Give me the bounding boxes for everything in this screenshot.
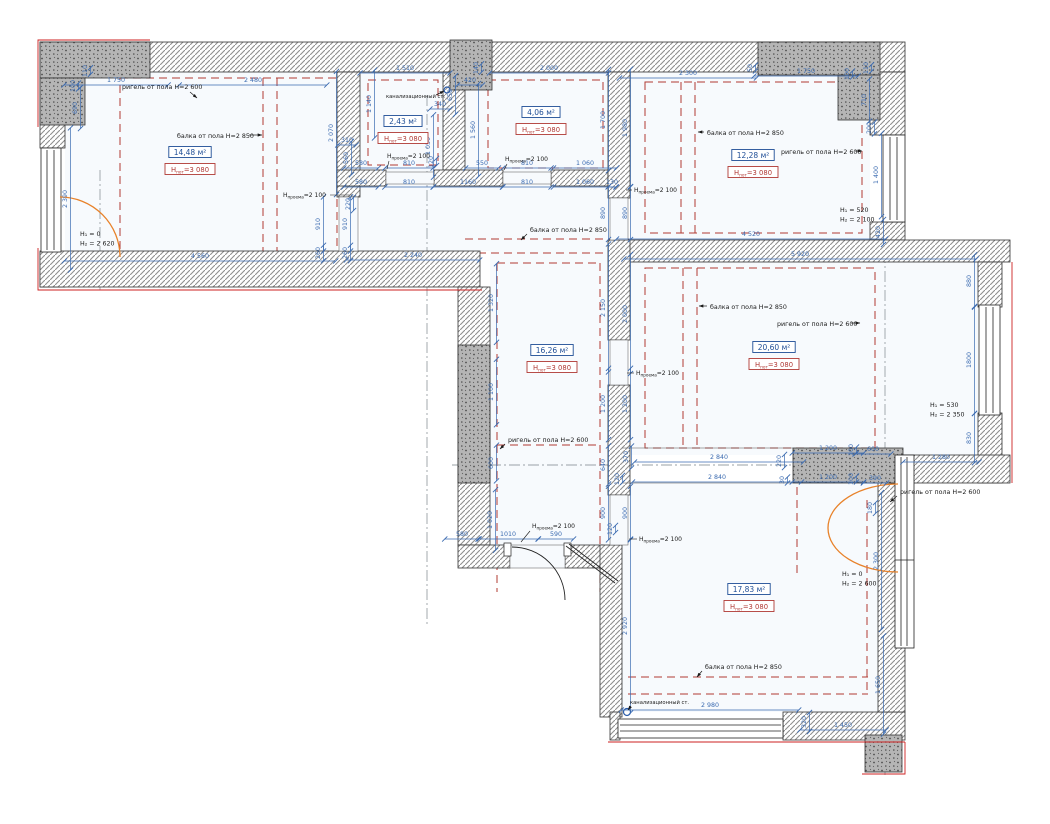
dimension-label: 130 [606, 179, 618, 186]
annotation-label: канализационный ст. [630, 699, 689, 706]
dimension-label: 2 390 [62, 190, 69, 208]
dimension-label: 4 520 [742, 231, 760, 238]
dimension-label: 1 200 [819, 474, 837, 481]
dimension-label: 2 240 [404, 252, 422, 259]
annotation-label: ригель от пола Н=2 600 [508, 437, 588, 444]
dimension-label: 340 [434, 101, 446, 108]
room-area-label: 17,83 м² [733, 585, 766, 594]
sill-height-line1: Н₁ = 0 [842, 571, 863, 578]
dimension-label: 1 200 [819, 445, 837, 452]
sill-height-line1: Н₁ = 520 [840, 207, 869, 214]
sill-height-line2: Н₂ = 2 600 [842, 581, 877, 588]
dimension-label: 50 [747, 64, 754, 72]
dimension-label: 600 [488, 457, 495, 469]
dimension-label: 220 [776, 455, 783, 467]
dimension-label: 390 [869, 475, 881, 482]
window [618, 719, 783, 738]
dimension-label: 420 [464, 77, 476, 84]
dimension-label: 1 200 [600, 395, 607, 413]
dimension-label: 1 750 [107, 77, 125, 84]
dimension-label: 890 [600, 207, 607, 219]
dimension-label: 810 [403, 179, 415, 186]
annotation: балка от пола Н=2 850 [177, 132, 262, 140]
annotation: балка от пола Н=2 850 [698, 129, 784, 137]
dimension-label: 1 060 [576, 160, 594, 167]
dimension-label: 1160 [460, 179, 476, 186]
dimension-label: 580 [355, 179, 367, 186]
annotation-label: балка от пола Н=2 850 [705, 663, 782, 671]
dimension-label: 1 280 [932, 454, 950, 461]
dimension-label: 910 [342, 218, 349, 230]
dimension-label: 910 [315, 218, 322, 230]
room-area-label: 20,60 м² [758, 343, 791, 352]
dimension-label: 1 060 [576, 179, 594, 186]
dimension-label: 590 [550, 531, 562, 538]
dimension-label: 120 [614, 473, 621, 485]
dimension-label: 1 510 [396, 65, 414, 72]
annotation-label: балка от пола Н=2 850 [707, 129, 784, 137]
dimension-label: 220 [345, 198, 352, 210]
dimension-label: 260 [315, 247, 322, 259]
dimension-label: 2 000 [622, 305, 629, 323]
annotation: балка от пола Н=2 850 [699, 303, 787, 311]
dimension-label: 100 [844, 68, 851, 80]
dimension-label: 1 650 [875, 676, 882, 694]
dimension-label: 110 [82, 65, 89, 77]
sill-height-line2: Н₂ = 2 100 [840, 217, 875, 224]
window [41, 148, 61, 252]
dimension-label: 5 920 [791, 251, 809, 258]
dimension-label: 1010 [500, 531, 516, 538]
annotation-label: ригель от пола Н=2 600 [122, 84, 202, 91]
dimension-label: 710 [861, 94, 868, 106]
sill-height-line2: Н₂ = 2 350 [930, 412, 965, 419]
dimension-label: 110 [863, 62, 870, 74]
dimension-label: 1 750 [797, 68, 815, 75]
annotation-label: балка от пола Н=2 850 [177, 132, 254, 140]
dimension-label: 1 020 [487, 511, 494, 529]
sill-height-line1: Н₁ = 530 [930, 402, 959, 409]
room-area-label: 14,48 м² [174, 148, 207, 157]
sill-height-line1: Н₁ = 0 [80, 231, 101, 238]
annotation-label: ригель от пола Н=2 600 [781, 149, 861, 156]
dimension-label: 100 [848, 473, 855, 485]
dimension-label: 900 [622, 507, 629, 519]
annotation: ригель от пола Н=2 600 [781, 149, 862, 156]
annotation-label: балка от пола Н=2 850 [530, 226, 607, 234]
dimension-label: 180 [867, 502, 874, 514]
window [979, 305, 1000, 415]
dimension-label: 830 [966, 432, 973, 444]
dimension-label: 2 300 [873, 552, 880, 570]
annotation-label: ригель от пола Н=2 600 [777, 321, 857, 328]
dimension-label: 810 [403, 160, 415, 167]
dimension-label: 370 [623, 451, 630, 463]
dimension-label: 580 [355, 160, 367, 167]
room-area-label: 16,26 м² [536, 346, 569, 355]
dimension-label: 2 480 [244, 77, 262, 84]
dimension-label: 600 [867, 446, 879, 453]
room-area-label: 2,43 м² [389, 117, 417, 126]
dimension-label: 1 400 [873, 166, 880, 184]
sill-height-line2: Н₂ = 2 620 [80, 241, 115, 248]
dimension-label: 2 000 [540, 65, 558, 72]
dimension-label: 1 560 [470, 121, 477, 139]
dimension-label: 640 [600, 459, 607, 471]
dimension-label: 120 [607, 523, 614, 535]
window [883, 135, 905, 222]
dimension-label: 2 840 [708, 474, 726, 481]
dimension-label: 2 840 [710, 454, 728, 461]
dimension-label: 890 [622, 207, 629, 219]
dimension-label: 1 700 [600, 111, 607, 129]
dimension-label: 1 320 [488, 294, 495, 312]
dimension-label: 880 [966, 275, 973, 287]
dimension-label: 1 200 [622, 395, 629, 413]
dimension-label: 580 [456, 531, 468, 538]
annotation: ригель от пола Н=2 600 [777, 321, 860, 328]
room-area-label: 12,28 м² [737, 151, 770, 160]
annotation-label: балка от пола Н=2 850 [710, 303, 787, 311]
dimension-label: 1 450 [834, 722, 852, 729]
dimension: 1 400 [873, 131, 884, 220]
floor-plan-canvas: 1 7502 4801 5101404206503402 0002 300501… [0, 0, 1050, 824]
dimension-label: 200 [866, 122, 873, 134]
dimension-label: 100 [70, 80, 77, 92]
dimension-label: 2 070 [328, 124, 335, 142]
dimension-label: 140 [473, 62, 480, 74]
dimension-label: 1800 [966, 352, 973, 368]
dimension-label: 1 980 [622, 119, 629, 137]
dimension-label: 320 [801, 716, 808, 728]
dimension-label: 100 [848, 444, 855, 456]
dimension-label: 2 300 [679, 70, 697, 77]
dimension-label: 650 [447, 89, 454, 101]
dimension-label: 2 920 [622, 617, 629, 635]
dimension-label: 2 150 [600, 299, 607, 317]
dimension-label: 4 560 [191, 253, 209, 260]
annotation-label: канализационный ст. [386, 93, 445, 100]
dimension-label: 420 [875, 226, 882, 238]
dimension-label: 2 980 [701, 702, 719, 709]
dimension-label: 1 100 [488, 383, 495, 401]
dimension-label: 260 [342, 247, 349, 259]
dimension-label: 1 140 [366, 95, 373, 113]
dimension-label: 550 [476, 160, 488, 167]
dimension-label: 810 [521, 179, 533, 186]
dimension-label: 900 [600, 507, 607, 519]
dimension-label: 560 [343, 152, 350, 164]
dimension-label: 30 [779, 476, 786, 484]
dimension-label: 690 [72, 102, 79, 114]
annotation-label: ригель от пола Н=2 600 [900, 489, 980, 496]
room-area-label: 4,06 м² [527, 108, 555, 117]
